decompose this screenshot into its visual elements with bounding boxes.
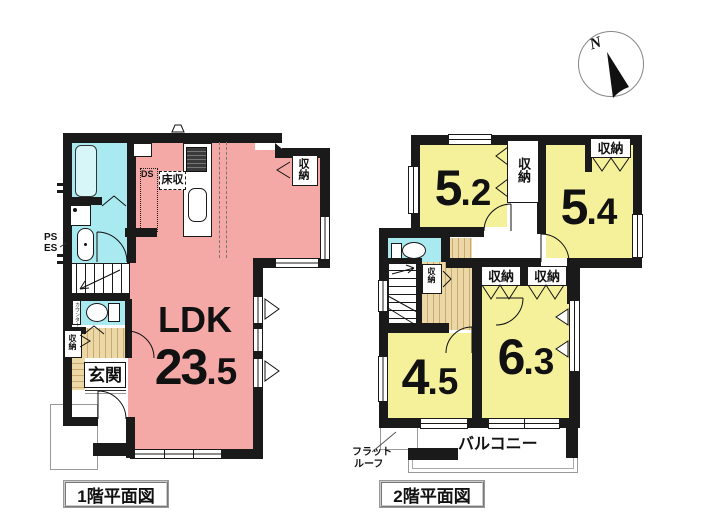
stairs-arrow-icon [80, 270, 120, 289]
floor1-title: 1階平面図 [77, 482, 154, 507]
door-arc [541, 234, 569, 262]
floor-storage-label: 床収 [159, 171, 186, 190]
door-arc [97, 232, 127, 262]
folding-door-icon [277, 162, 290, 178]
room-5-2-int: 5 [435, 160, 461, 216]
compass-needle-icon [607, 52, 629, 98]
casement-mark [265, 299, 279, 319]
room-4-5-dec: .5 [427, 361, 458, 402]
door-arc [496, 298, 523, 325]
floor2-title-box: 2階平面図 [380, 481, 484, 507]
room-6-3-int: 6 [498, 329, 524, 385]
folding-door-zigzag [482, 285, 518, 299]
vent-icon [172, 125, 184, 132]
folding-door-zigzag [528, 285, 564, 299]
room-6-3-dec: .3 [523, 341, 554, 382]
floor2-title: 2階平面図 [393, 482, 470, 507]
balcony-label: バルコニー [458, 437, 538, 453]
door-arc [98, 391, 126, 419]
closet-mid-2f-label: 収納 [517, 157, 530, 183]
closet-a-2f-label: 収納 [481, 267, 521, 285]
pipe-space-label: PS [44, 233, 57, 243]
room-5-4-dec: .4 [586, 191, 617, 232]
door-arc [446, 327, 472, 353]
stairs-fan-lines [388, 296, 417, 324]
ldk-name-text: LDK [158, 302, 232, 338]
ldk-name-label: LDK [150, 302, 240, 338]
floor1-title-box: 1階平面図 [64, 481, 168, 507]
room-5-2-dec: .2 [460, 172, 491, 213]
flat-roof-label-2: ルーフ [354, 460, 383, 470]
closet-ne-1f-label: 収納 [297, 158, 308, 180]
electric-space-label: ES [44, 244, 57, 254]
room-6-3-label: 6.3 [480, 332, 572, 382]
counter-label: カウンター [74, 302, 79, 327]
ps-es-tick [60, 243, 66, 247]
casement-mark [265, 361, 279, 381]
duct-space-label: DS [141, 170, 154, 179]
floorplan-canvas: N [0, 0, 705, 525]
stairs-arrow-icon [392, 265, 414, 274]
closet-hall-1f-label: 収納 [68, 334, 76, 350]
casement-mark [556, 309, 568, 325]
folding-door-icon [102, 196, 126, 206]
folding-door-zigzag [593, 158, 629, 171]
genkan-label: 玄関 [84, 362, 126, 388]
closet-ne-2f-label: 収納 [590, 139, 631, 157]
room-5-4-int: 5 [561, 179, 587, 235]
folding-door-icon [84, 326, 104, 334]
ldk-area-dec: .5 [206, 351, 237, 392]
room-5-2-label: 5.2 [418, 163, 508, 213]
ldk-area-label: 23.5 [140, 342, 252, 392]
ldk-area-int: 23 [155, 339, 207, 395]
closet-b-2f-label: 収納 [527, 267, 567, 285]
folding-door-icon [443, 271, 451, 287]
wall-diagonal [275, 143, 293, 158]
room-4-5-label: 4.5 [386, 352, 474, 402]
flat-roof-label-1: フラット [352, 448, 392, 458]
closet-stairs-2f-label: 収納 [427, 267, 435, 283]
folding-door-icon [80, 335, 90, 347]
room-4-5-int: 4 [402, 349, 428, 405]
room-5-4-label: 5.4 [544, 182, 634, 232]
